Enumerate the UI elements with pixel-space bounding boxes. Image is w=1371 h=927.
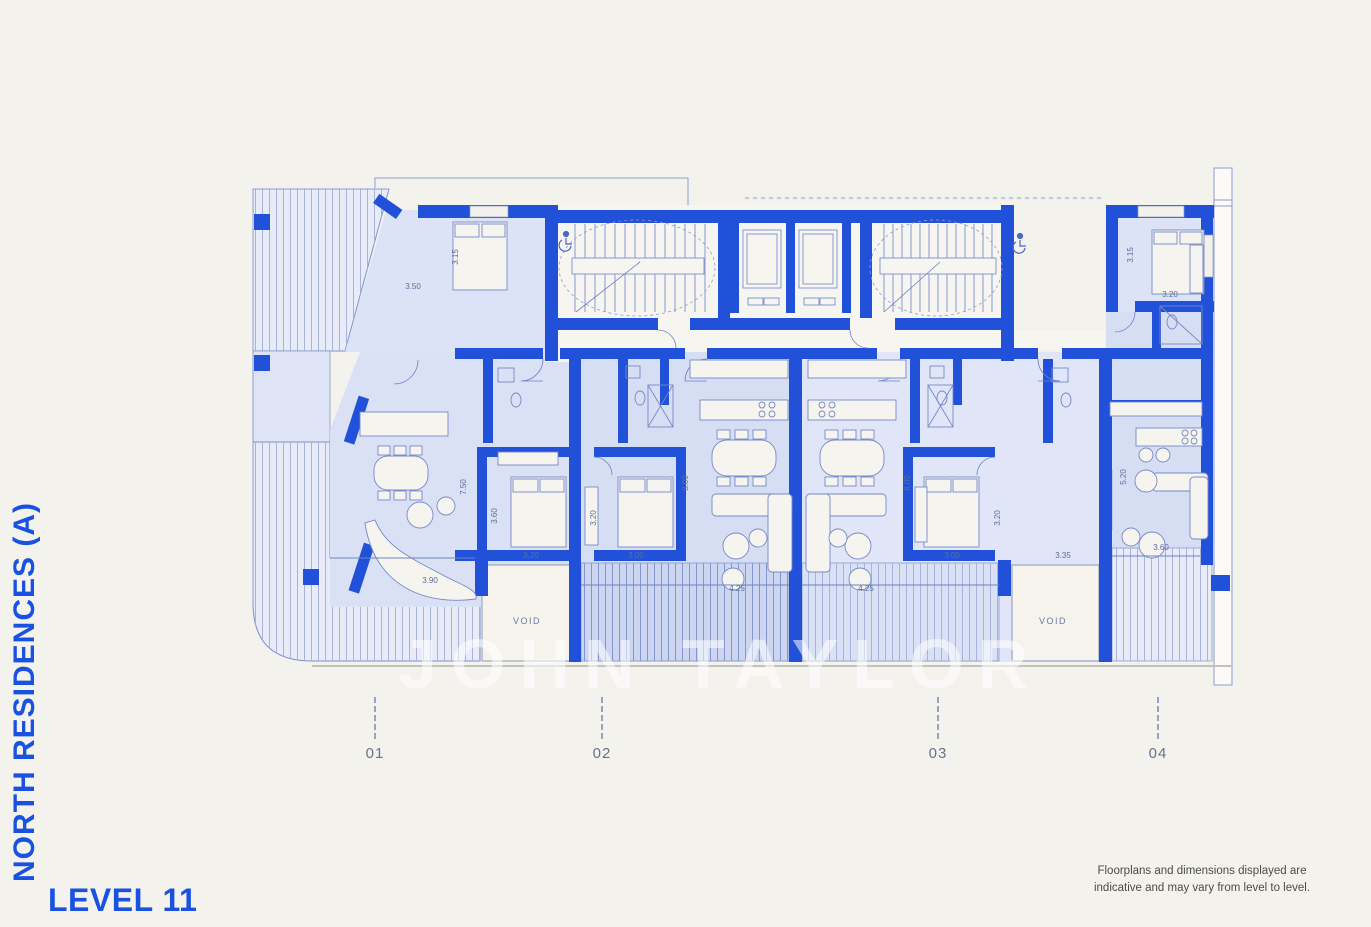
kitchen-island — [700, 400, 788, 420]
dining-table — [712, 430, 776, 486]
unit-marker-label: 02 — [572, 745, 632, 762]
unit-marker-tick — [374, 697, 376, 739]
dimension-label: 3.60 — [490, 508, 499, 524]
dimension-label: 3.20 — [1162, 290, 1178, 299]
dimension-label: 3.00 — [628, 551, 644, 560]
dimension-label: 3.35 — [1055, 551, 1071, 560]
unit-marker-tick — [601, 697, 603, 739]
void-label: VOID — [513, 616, 541, 626]
dimension-label: 4.25 — [729, 584, 745, 593]
dimension-label: 3.20 — [993, 510, 1002, 526]
dimension-label: 8.00 — [681, 475, 690, 491]
disclaimer-line1: Floorplans and dimensions displayed are — [1067, 863, 1337, 880]
dining-table — [374, 446, 428, 500]
bed — [618, 477, 673, 547]
disclaimer-line2: indicative and may vary from level to le… — [1067, 880, 1337, 897]
dimension-label: 3.60 — [1153, 543, 1169, 552]
unit-marker-04: 04 — [1128, 697, 1188, 762]
unit-marker-03: 03 — [908, 697, 968, 762]
dimension-label: 3.50 — [405, 282, 421, 291]
disclaimer: Floorplans and dimensions displayed are … — [1067, 863, 1337, 898]
unit-marker-tick — [1157, 697, 1159, 739]
unit-marker-02: 02 — [572, 697, 632, 762]
unit-marker-label: 04 — [1128, 745, 1188, 762]
dimension-label: 3.20 — [523, 551, 539, 560]
dimension-label: 3.90 — [422, 576, 438, 585]
dimension-label: 7.50 — [459, 479, 468, 495]
level-label: LEVEL 11 — [48, 882, 197, 919]
unit-marker-01: 01 — [345, 697, 405, 762]
dimension-label: 5.20 — [1119, 469, 1128, 485]
dimension-label: 4.25 — [858, 584, 874, 593]
kitchen-island — [808, 400, 896, 420]
unit-marker-label: 01 — [345, 745, 405, 762]
dimension-label: 3.20 — [589, 510, 598, 526]
dining-table — [820, 430, 884, 486]
floorplan-drawing: 3.503.157.503.603.203.903.203.008.004.25… — [0, 0, 1371, 927]
unit-marker-label: 03 — [908, 745, 968, 762]
void-label: VOID — [1039, 616, 1067, 626]
dimension-label: 3.15 — [1126, 247, 1135, 263]
bed — [924, 477, 979, 547]
unit-marker-tick — [937, 697, 939, 739]
dimension-label: 3.15 — [451, 249, 460, 265]
bed — [511, 477, 566, 547]
bed — [453, 222, 507, 290]
dimension-label: 8.00 — [903, 475, 912, 491]
dimension-label: 3.00 — [944, 551, 960, 560]
